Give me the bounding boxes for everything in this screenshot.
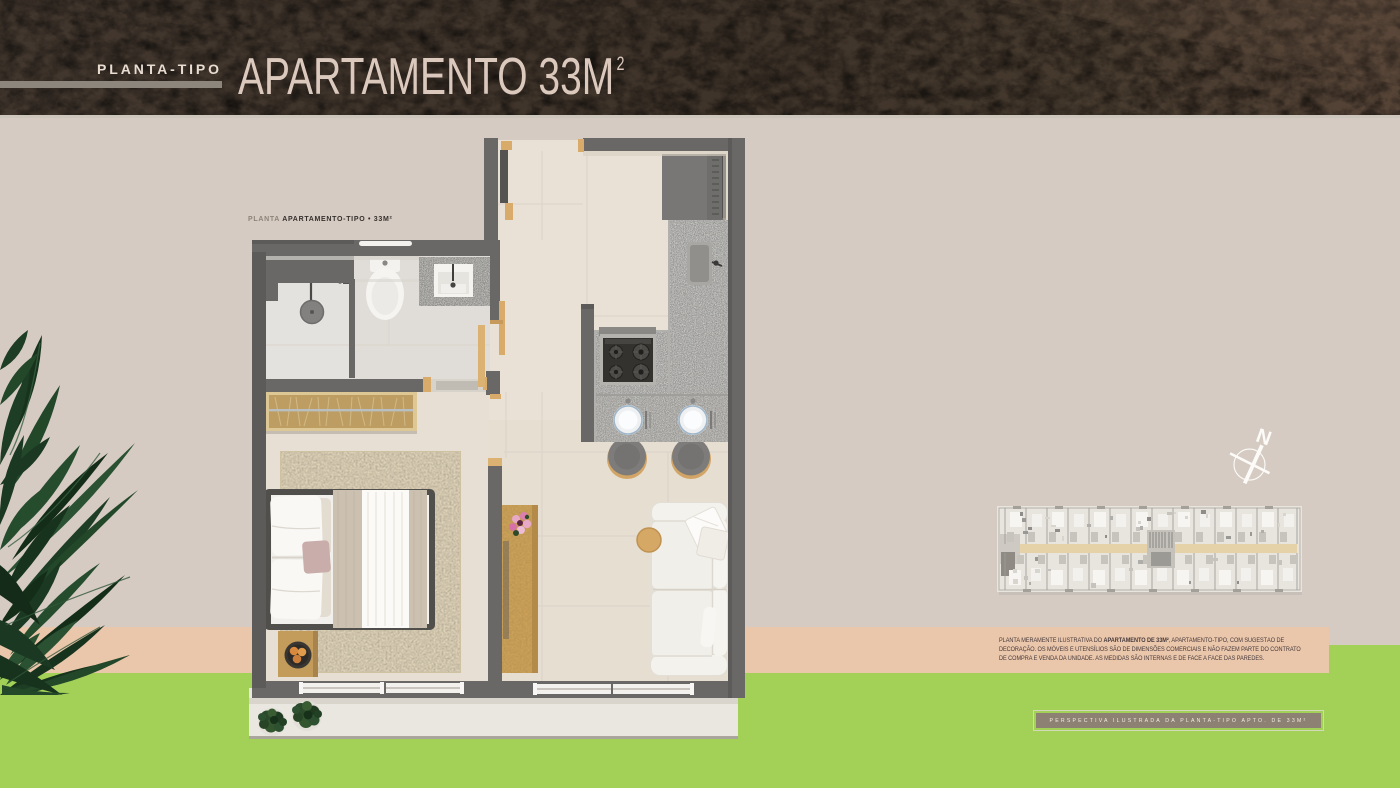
svg-text:N: N <box>1253 425 1274 451</box>
